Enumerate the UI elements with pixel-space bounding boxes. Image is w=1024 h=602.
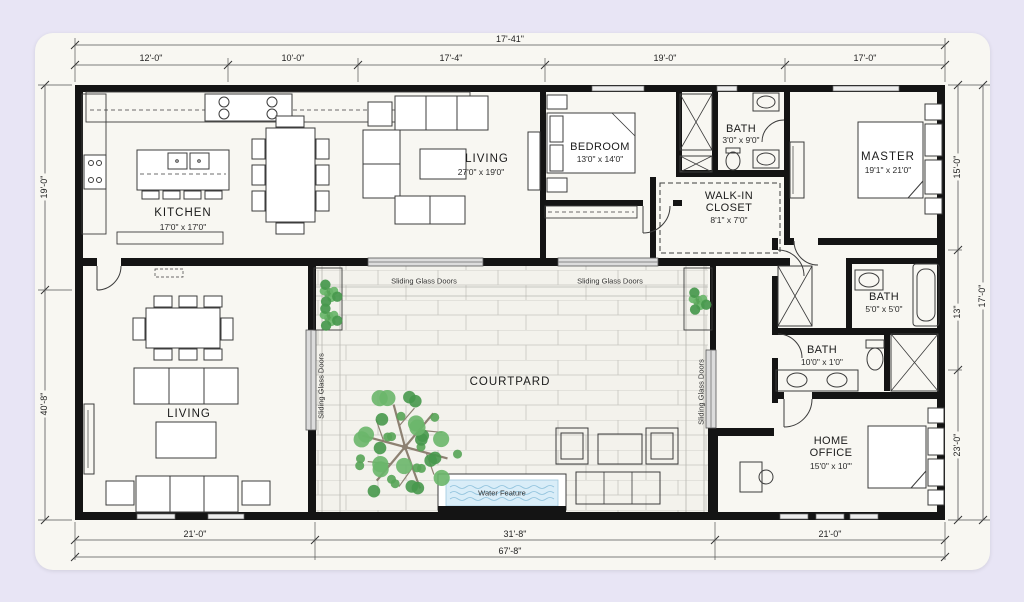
home-office-label-1: HOME	[814, 435, 849, 447]
sliding-doors-label-right: Sliding Glass Doors	[697, 359, 706, 425]
bedroom-dims: 13'0" x 14'0"	[577, 154, 624, 164]
dim-bottom-seg-3: 21'-0"	[817, 529, 844, 539]
dim-right-overall: 17'-0"	[977, 283, 987, 310]
bedroom-label: BEDROOM	[570, 141, 630, 153]
walk-in-closet-label-2: CLOSET	[706, 202, 752, 214]
bath-lower-dims: 10'0" x 1'0"	[801, 357, 843, 367]
bath-top-dims: 3'0" x 9'0"	[722, 135, 759, 145]
dim-right-seg-2: 13"	[952, 303, 962, 320]
living-top-dims: 27'0" x 19'0"	[458, 167, 505, 177]
dim-top-overall: 17'-41"	[494, 34, 526, 44]
coffee-table	[156, 422, 216, 458]
armchair	[368, 102, 392, 126]
sliding-doors-label-top-2: Sliding Glass Doors	[577, 277, 643, 286]
dim-left-seg-1: 19'-0"	[39, 174, 49, 201]
sliding-doors-label-top-1: Sliding Glass Doors	[391, 277, 457, 286]
dim-top-seg-2: 10'-0"	[280, 53, 307, 63]
desk-chair	[759, 470, 773, 484]
bath-top-label: BATH	[726, 123, 756, 135]
tv-console	[84, 404, 94, 474]
dim-left-seg-2: 40'-8"	[39, 391, 49, 418]
wardrobe	[790, 142, 804, 198]
dim-right-seg-3: 23'-0"	[952, 432, 962, 459]
dim-top-seg-1: 12'-0"	[138, 53, 165, 63]
dining-table	[146, 308, 220, 348]
home-office-label-2: OFFICE	[810, 447, 853, 459]
vanity	[776, 370, 858, 391]
kitchen-label: KITCHEN	[154, 207, 211, 219]
dim-top-seg-5: 17'-0"	[852, 53, 879, 63]
sink-icon	[757, 153, 775, 165]
kitchen-dims: 17'0" x 17'0"	[160, 222, 207, 232]
living-bottom-label: LIVING	[167, 408, 211, 420]
bath-mid-label: BATH	[869, 291, 899, 303]
toilet-icon	[726, 152, 740, 170]
walk-in-closet-dims: 8'1" x 7'0"	[710, 215, 747, 225]
master-label: MASTER	[861, 151, 915, 163]
toilet-icon	[867, 348, 883, 370]
sofa	[395, 96, 488, 130]
page-background: KITCHEN 17'0" x 17'0" LIVING 27'0" x 19'…	[0, 0, 1024, 602]
wall-oven-icon	[84, 155, 106, 189]
sofa	[134, 368, 238, 404]
dim-right-seg-1: 15'-0"	[952, 154, 962, 181]
master-dims: 19'1" x 21'0"	[865, 165, 912, 175]
dim-bottom-overall: 67'-8"	[497, 546, 524, 556]
sink-icon	[859, 273, 879, 287]
dim-bottom-seg-1: 21'-0"	[182, 529, 209, 539]
dim-top-seg-4: 19'-0"	[652, 53, 679, 63]
water-feature-label: Water Feature	[478, 489, 526, 498]
tv-console	[528, 132, 540, 190]
dim-top-seg-3: 17'-4"	[438, 53, 465, 63]
sofa	[136, 476, 238, 512]
living-top-label: LIVING	[465, 153, 509, 165]
dining-table	[266, 128, 315, 222]
bath-lower-label: BATH	[807, 344, 837, 356]
walk-in-closet-label-1: WALK-IN	[705, 190, 753, 202]
bath-mid-dims: 5'0" x 5'0"	[865, 304, 902, 314]
courtyard-label: COURTPARD	[470, 376, 551, 388]
home-office-dims: 15'0" x 10'"	[810, 461, 852, 471]
sink-icon	[757, 96, 775, 108]
kitchen-island	[137, 150, 229, 190]
sliding-doors-label-left: Sliding Glass Doors	[317, 353, 326, 419]
bed	[868, 426, 926, 488]
dim-bottom-seg-2: 31'-8"	[502, 529, 529, 539]
